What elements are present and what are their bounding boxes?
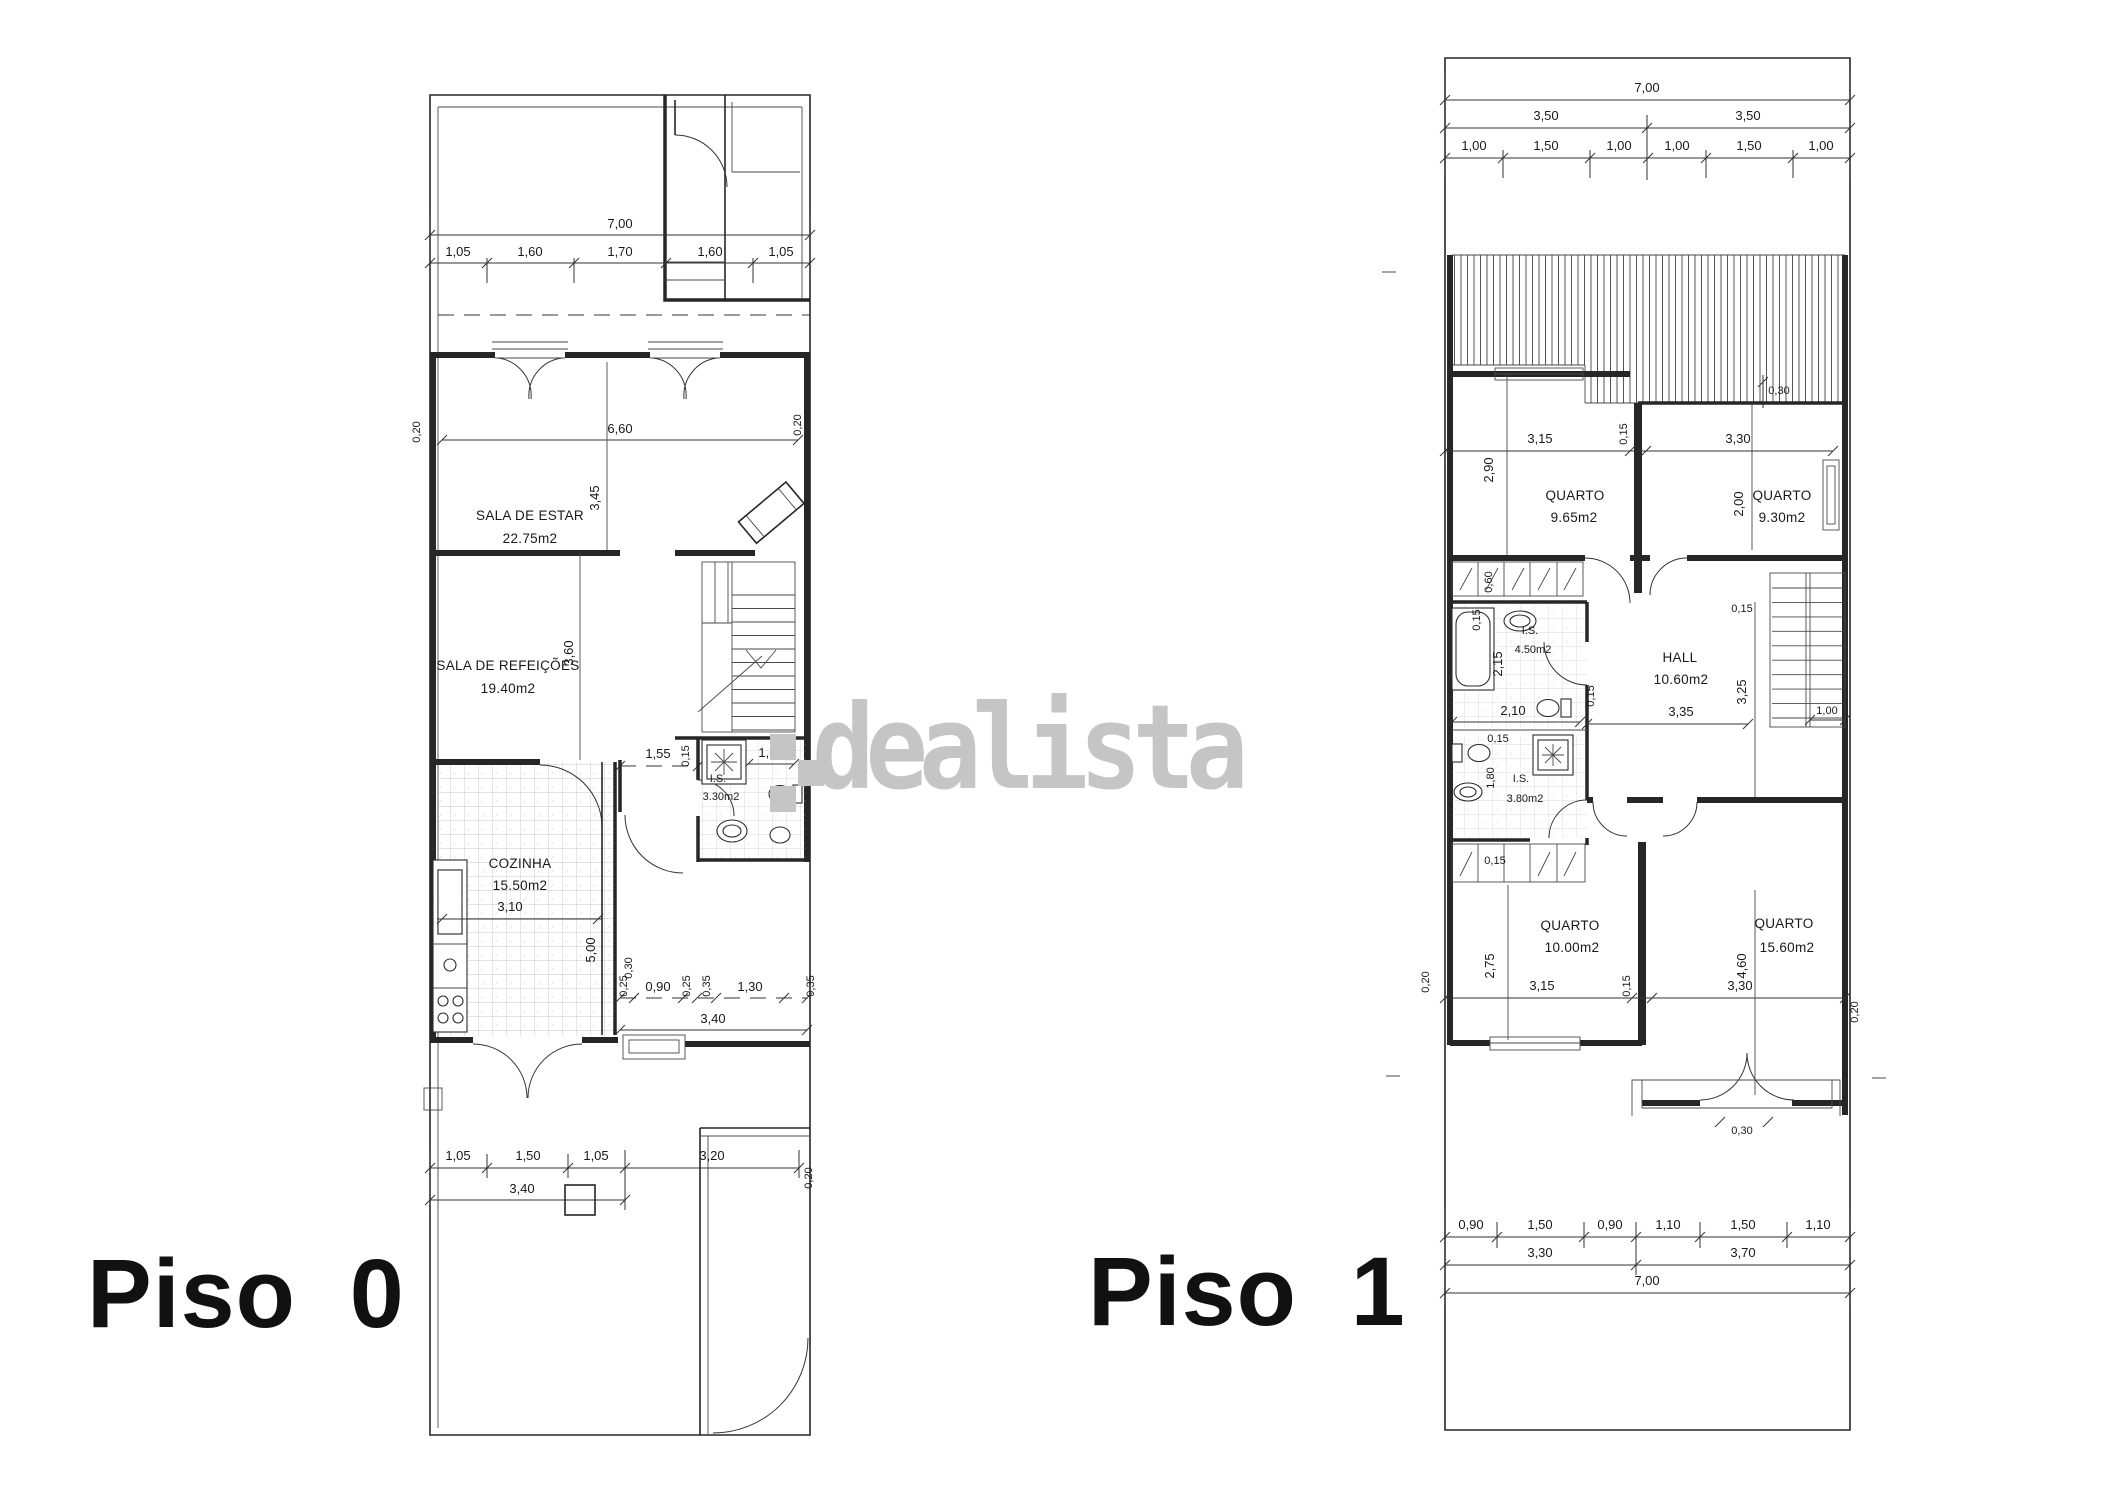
watermark-text: dealista	[812, 690, 1239, 806]
staircase: 1,00	[1770, 573, 1850, 727]
room-wc1-area: 4.50m2	[1515, 644, 1552, 656]
dim-wall-thin: 0,15	[1585, 685, 1597, 706]
dim-dining-depth: 3,60	[561, 640, 576, 665]
dim-wall-thin: 0,15	[1484, 855, 1505, 867]
dim-bed2-width: 3,30	[1725, 431, 1750, 446]
room-living-area: 22.75m2	[503, 531, 558, 546]
dim-bed3-width: 3,15	[1529, 978, 1554, 993]
dims-bottom: 1,05 1,50 1,05 3,20 3,40 0,20	[425, 1148, 815, 1210]
dim-living-width: 6,60	[607, 421, 632, 436]
dims-bottom: 0,90 1,50 0,90 1,10 1,50 1,10 3,30 3,70 …	[1440, 1210, 1855, 1305]
dim-bed1-depth: 2,90	[1481, 457, 1496, 482]
dim-bottom: 1,10	[1805, 1217, 1830, 1232]
room-kitchen: COZINHA 15.50m2 3,10 5,00 0,30	[430, 762, 635, 1036]
dim-top-seg: 1,00	[1808, 138, 1833, 153]
dim-wall-right: 0,20	[792, 414, 804, 435]
dim-porch: 0,30	[1731, 1125, 1752, 1137]
dim-bottom: 1,50	[515, 1148, 540, 1163]
dim-wardrobe: 0,60	[1483, 571, 1495, 592]
dim-top-seg: 1,50	[1736, 138, 1761, 153]
room-living-name: SALA DE ESTAR	[476, 508, 584, 523]
room-bed1-area: 9.65m2	[1551, 510, 1598, 525]
wardrobe-b: 0,15	[1450, 840, 1585, 882]
room-kitchen-name: COZINHA	[489, 856, 552, 871]
room-bed4-name: QUARTO	[1754, 916, 1813, 931]
dim-hall-depth: 3,25	[1734, 679, 1749, 704]
room-living: SALA DE ESTAR 22.75m2 6,60 0,20 0,20 3,4…	[411, 362, 804, 550]
rear-wall	[430, 1035, 810, 1098]
dim-top-seg: 1,60	[517, 244, 542, 259]
dim-rear: 0,90	[645, 979, 670, 994]
dims-top: 7,00 1,05 1,60 1,70 1,60 1,05	[425, 215, 815, 283]
room-dining: SALA DE REFEIÇÕES 19.40m2 3,60	[436, 553, 580, 760]
dim-bottom: 1,05	[445, 1148, 470, 1163]
dims-hall: 1,55 0,15	[615, 745, 703, 771]
dim-top-seg: 1,05	[445, 244, 470, 259]
dim-bed2-depth: 2,00	[1731, 491, 1746, 516]
room-wc-area: 3.30m2	[703, 791, 740, 803]
rear-garden	[424, 1088, 810, 1435]
dim-wall-thin: 0,15	[1487, 733, 1508, 745]
room-bed4: QUARTO 15.60m2 4,60 3,30 0,20	[1642, 890, 1861, 1103]
dim-top-seg: 1,70	[607, 244, 632, 259]
dim-bottom-wall: 0,20	[803, 1167, 815, 1188]
rear-porch: 0,30	[1632, 1080, 1840, 1137]
floor1-plan: 7,00 3,50 3,50 1,00 1,50 1,00 1,00 1,50 …	[1380, 30, 1920, 1450]
dim-stair-width: 1,00	[1816, 705, 1837, 717]
dim-wall-right: 0,20	[1849, 1001, 1861, 1022]
dim-top-seg: 1,00	[1664, 138, 1689, 153]
roof-hatch: 0,30	[1452, 255, 1845, 408]
watermark-pixel	[770, 734, 796, 760]
dim-terrace-width: 3,20	[699, 1148, 724, 1163]
dim-bed4-width: 3,30	[1727, 978, 1752, 993]
room-bed3-name: QUARTO	[1540, 918, 1599, 933]
dim-wall-left: 0,20	[1420, 971, 1432, 992]
room-dining-name: SALA DE REFEIÇÕES	[436, 658, 579, 673]
dim-bed3-depth: 2,75	[1482, 953, 1497, 978]
dim-half: 3,50	[1533, 108, 1558, 123]
dim-wall-thin: 0,15	[1618, 423, 1630, 444]
entry-porch	[665, 95, 810, 300]
room-wc2: I.S. 3.80m2 1,80 0,15	[1452, 733, 1587, 838]
wardrobe-a: 0,60	[1452, 562, 1583, 596]
dim-wall-thin: 0,15	[1731, 603, 1752, 615]
rear-hall-door	[620, 760, 683, 873]
dim-living-depth: 3,45	[587, 485, 602, 510]
room-wc-name: I.S.	[710, 773, 727, 785]
dim-rear-total: 3,40	[700, 1011, 725, 1026]
dim-half: 3,50	[1735, 108, 1760, 123]
dim-top-seg: 1,05	[768, 244, 793, 259]
room-wc1-name: I.S.	[1522, 625, 1539, 637]
dims-top: 7,00 3,50 3,50 1,00 1,50 1,00 1,00 1,50 …	[1440, 70, 1855, 180]
room-bed2: QUARTO 9.30m2 2,00	[1731, 403, 1839, 550]
dim-bottom-half: 3,70	[1730, 1245, 1755, 1260]
dim-bottom: 1,10	[1655, 1217, 1680, 1232]
room-wc2-name: I.S.	[1513, 773, 1530, 785]
dim-bottom: 0,90	[1597, 1217, 1622, 1232]
dim-rear: 1,30	[737, 979, 762, 994]
dim-bottom: 0,90	[1458, 1217, 1483, 1232]
front-wall	[430, 342, 810, 399]
dim-rear: 0,25	[681, 975, 693, 996]
dim-kitchen-width: 3,10	[497, 899, 522, 914]
dim-wall-left: 0,20	[411, 421, 423, 442]
dim-hall-width: 1,55	[645, 746, 670, 761]
floorplan-page: { "watermark": { "text": "dealista", "co…	[0, 0, 2114, 1510]
dim-bottom: 1,50	[1527, 1217, 1552, 1232]
dim-wall-thin: 0,15	[1471, 609, 1483, 630]
dim-total-bottom: 7,00	[1634, 1273, 1659, 1288]
floor0-label: Piso 0	[87, 1238, 405, 1350]
dim-hall-width: 3,35	[1668, 704, 1693, 719]
dim-top-seg: 1,00	[1461, 138, 1486, 153]
dim-rear: 0,35	[805, 975, 817, 996]
dim-wall-thin: 0,15	[1621, 975, 1633, 996]
dim-total-top: 7,00	[1634, 80, 1659, 95]
dim-top-seg: 1,50	[1533, 138, 1558, 153]
dim-rear: 0,25	[618, 975, 630, 996]
room-dining-area: 19.40m2	[481, 681, 536, 696]
dim-top-seg: 1,00	[1606, 138, 1631, 153]
dim-bottom-half: 3,30	[1527, 1245, 1552, 1260]
dim-bottom: 1,05	[583, 1148, 608, 1163]
dim-wc1-width: 2,10	[1500, 703, 1525, 718]
room-kitchen-area: 15.50m2	[493, 878, 548, 893]
idealista-watermark: dealista	[768, 690, 1288, 830]
room-bed2-name: QUARTO	[1752, 488, 1811, 503]
dim-bed4-depth: 4,60	[1734, 953, 1749, 978]
dim-wc2-depth: 1,80	[1485, 767, 1497, 788]
room-bed2-area: 9.30m2	[1759, 510, 1806, 525]
dim-roof-offset: 0,30	[1768, 385, 1789, 397]
dim-bottom: 1,50	[1730, 1217, 1755, 1232]
room-bed4-area: 15.60m2	[1760, 940, 1815, 955]
room-bed1-name: QUARTO	[1545, 488, 1604, 503]
room-hall-area: 10.60m2	[1654, 672, 1709, 687]
room-hall-name: HALL	[1663, 650, 1698, 665]
dim-top-seg: 1,60	[697, 244, 722, 259]
dim-wall-thin: 0,15	[680, 745, 692, 766]
dim-rear: 0,35	[701, 975, 713, 996]
room-wc2-area: 3.80m2	[1507, 793, 1544, 805]
dim-kitchen-depth: 5,00	[583, 937, 598, 962]
dim-bottom-total: 3,40	[509, 1181, 534, 1196]
dim-bed1-width: 3,15	[1527, 431, 1552, 446]
dim-total-top: 7,00	[607, 216, 632, 231]
watermark-pixel	[770, 786, 796, 812]
dims-rear: 0,25 0,90 0,25 0,35 1,30 0,35 3,40	[615, 975, 817, 1035]
fireplace	[738, 482, 803, 543]
room-bed3-area: 10.00m2	[1545, 940, 1600, 955]
floor1-label: Piso 1	[1088, 1236, 1406, 1348]
dim-wc1-depth: 2,15	[1490, 651, 1505, 676]
